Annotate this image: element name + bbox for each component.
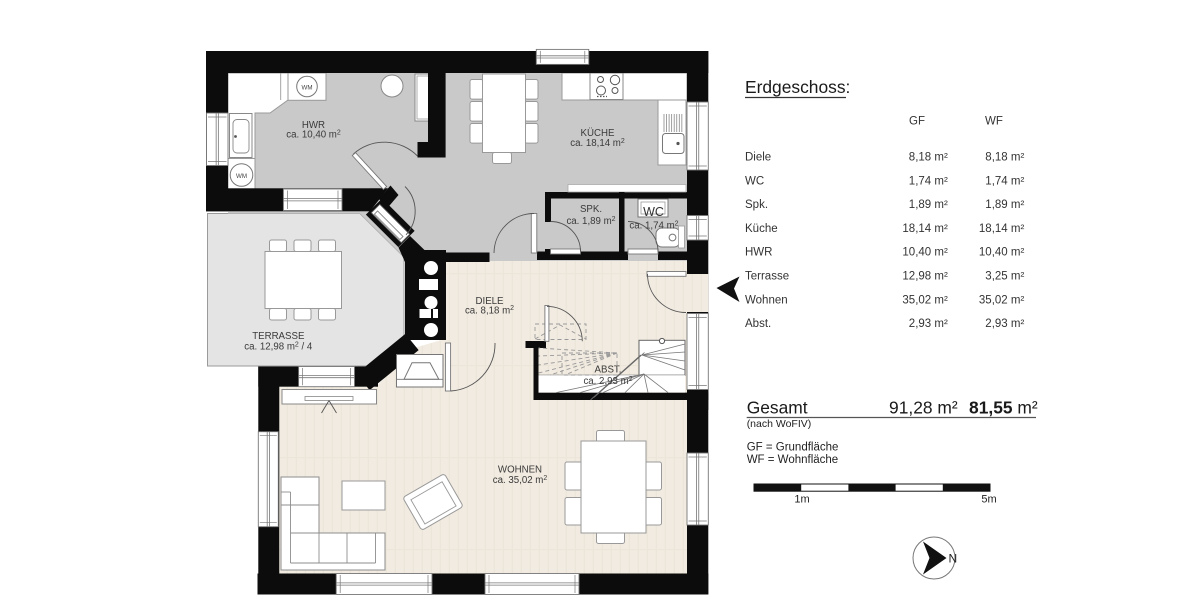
svg-text:Terrasse: Terrasse xyxy=(745,271,789,283)
svg-text:1,74 m²: 1,74 m² xyxy=(909,175,948,187)
svg-text:1,89 m²: 1,89 m² xyxy=(909,199,948,211)
svg-text:GF: GF xyxy=(909,116,925,128)
svg-text:5m: 5m xyxy=(981,494,996,506)
svg-text:Abst.: Abst. xyxy=(745,318,771,330)
svg-text:35,02 m²: 35,02 m² xyxy=(979,294,1025,306)
svg-text:Spk.: Spk. xyxy=(745,199,768,211)
svg-text:10,40 m²: 10,40 m² xyxy=(902,247,948,259)
svg-text:3,25 m²: 3,25 m² xyxy=(985,271,1024,283)
svg-text:81,55 m²: 81,55 m² xyxy=(969,397,1038,417)
svg-text:GF = Grundfläche: GF = Grundfläche xyxy=(747,442,839,454)
svg-text:91,28 m²: 91,28 m² xyxy=(889,397,958,417)
svg-text:1m: 1m xyxy=(794,494,809,506)
svg-text:Erdgeschoss:: Erdgeschoss: xyxy=(745,77,850,97)
svg-text:8,18 m²: 8,18 m² xyxy=(985,152,1024,164)
svg-text:WM: WM xyxy=(302,84,313,91)
svg-text:WOHNEN: WOHNEN xyxy=(498,465,542,476)
svg-text:8,18 m²: 8,18 m² xyxy=(909,152,948,164)
svg-text:ca. 1,74 m2: ca. 1,74 m2 xyxy=(629,220,678,231)
svg-text:HWR: HWR xyxy=(745,247,772,259)
svg-text:ca. 8,18 m2: ca. 8,18 m2 xyxy=(465,305,514,316)
svg-text:Gesamt: Gesamt xyxy=(747,397,808,417)
svg-text:ca. 2,93 m2: ca. 2,93 m2 xyxy=(583,376,632,387)
svg-text:WF: WF xyxy=(985,116,1003,128)
svg-text:10,40 m²: 10,40 m² xyxy=(979,247,1025,259)
svg-text:WC: WC xyxy=(643,205,664,219)
svg-text:18,14 m²: 18,14 m² xyxy=(979,223,1025,235)
svg-text:ca. 18,14 m2: ca. 18,14 m2 xyxy=(570,138,625,149)
svg-text:2,93 m²: 2,93 m² xyxy=(909,318,948,330)
svg-text:Küche: Küche xyxy=(745,223,778,235)
svg-text:18,14 m²: 18,14 m² xyxy=(902,223,948,235)
svg-text:WF = Wohnfläche: WF = Wohnfläche xyxy=(747,454,839,466)
svg-text:35,02 m²: 35,02 m² xyxy=(902,294,948,306)
svg-text:1,89 m²: 1,89 m² xyxy=(985,199,1024,211)
svg-text:Wohnen: Wohnen xyxy=(745,294,788,306)
svg-text:ABST.: ABST. xyxy=(595,365,622,376)
svg-text:2,93 m²: 2,93 m² xyxy=(985,318,1024,330)
svg-text:ca. 35,02 m2: ca. 35,02 m2 xyxy=(493,475,548,486)
svg-text:ca. 12,98 m2 / 4: ca. 12,98 m2 / 4 xyxy=(244,341,313,352)
svg-text:1,74 m²: 1,74 m² xyxy=(985,175,1024,187)
svg-text:WM: WM xyxy=(236,173,247,180)
svg-text:WC: WC xyxy=(745,175,764,187)
svg-text:ca. 10,40 m2: ca. 10,40 m2 xyxy=(286,129,341,140)
svg-text:Diele: Diele xyxy=(745,152,771,164)
svg-text:ca. 1,89 m2: ca. 1,89 m2 xyxy=(566,216,615,227)
svg-text:SPK.: SPK. xyxy=(580,204,602,215)
svg-text:12,98 m²: 12,98 m² xyxy=(902,271,948,283)
svg-text:N: N xyxy=(949,552,958,566)
svg-text:(nach WoFIV): (nach WoFIV) xyxy=(747,418,812,430)
